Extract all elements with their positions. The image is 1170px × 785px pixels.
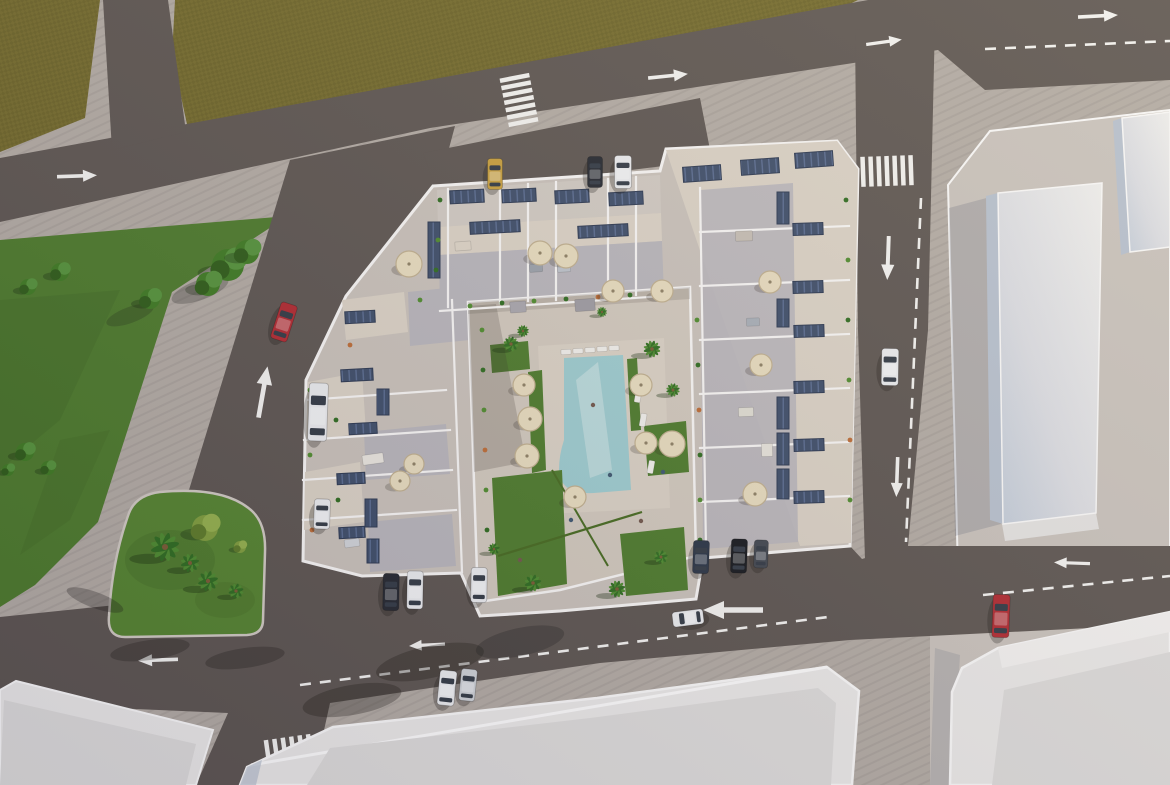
aerial-site-render: [0, 0, 1170, 785]
lighting-overlay: [0, 0, 1170, 785]
site-plan-canvas: [0, 0, 1170, 785]
